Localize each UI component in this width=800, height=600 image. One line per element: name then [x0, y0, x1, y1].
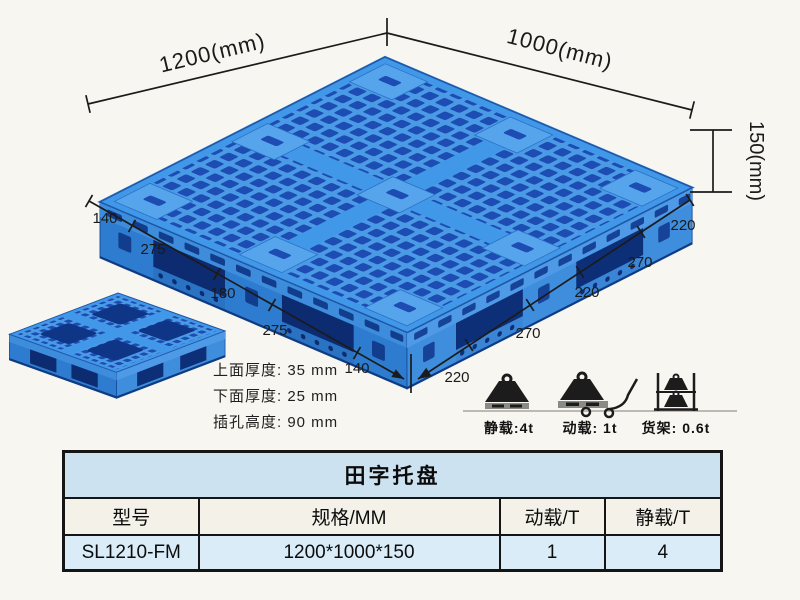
right-seg-220c: 220 [444, 369, 469, 386]
rack-load-label: 货架: 0.6t [642, 418, 711, 438]
col-spec: 规格/MM [199, 498, 500, 535]
height-label: 150(mm) [745, 121, 767, 201]
left-seg-275a: 275 [140, 241, 165, 258]
spec-table-title: 田字托盘 [64, 452, 722, 499]
col-dynamic-load: 动载/T [500, 498, 605, 535]
note-fork-height: 插孔高度: 90 mm [213, 410, 338, 436]
right-seg-270a: 270 [627, 254, 652, 271]
spec-table-header-row: 型号 规格/MM 动载/T 静载/T [64, 498, 722, 535]
note-top-thickness: 上面厚度: 35 mm [213, 358, 338, 384]
right-seg-270b: 270 [515, 325, 540, 342]
left-seg-140a: 140 [92, 210, 117, 227]
col-model: 型号 [64, 498, 199, 535]
dynamic-load-label: 动载: 1t [563, 418, 618, 438]
cell-spec: 1200*1000*150 [199, 535, 500, 571]
left-seg-275b: 275 [262, 322, 287, 339]
cell-model: SL1210-FM [64, 535, 199, 571]
right-seg-220a: 220 [670, 217, 695, 234]
small-pallet-image [9, 293, 225, 398]
left-seg-180: 180 [210, 285, 235, 302]
thickness-notes: 上面厚度: 35 mm 下面厚度: 25 mm 插孔高度: 90 mm [213, 358, 338, 436]
col-static-load: 静载/T [605, 498, 722, 535]
spec-table: 田字托盘 型号 规格/MM 动载/T 静载/T SL1210-FM 1200*1… [62, 450, 723, 572]
right-seg-220b: 220 [574, 284, 599, 301]
static-load-label: 静载:4t [484, 418, 534, 438]
spec-table-title-row: 田字托盘 [64, 452, 722, 499]
rack-load-shelf-icon [654, 373, 698, 411]
cell-dynamic-load: 1 [500, 535, 605, 571]
load-capacity-icons [463, 373, 737, 417]
static-load-weight-icon [485, 375, 529, 409]
left-seg-140b: 140 [344, 360, 369, 377]
cell-static-load: 4 [605, 535, 722, 571]
spec-table-data-row: SL1210-FM 1200*1000*150 1 4 [64, 535, 722, 571]
note-bottom-thickness: 下面厚度: 25 mm [213, 384, 338, 410]
top-width-label: 1200(mm) [157, 28, 268, 78]
